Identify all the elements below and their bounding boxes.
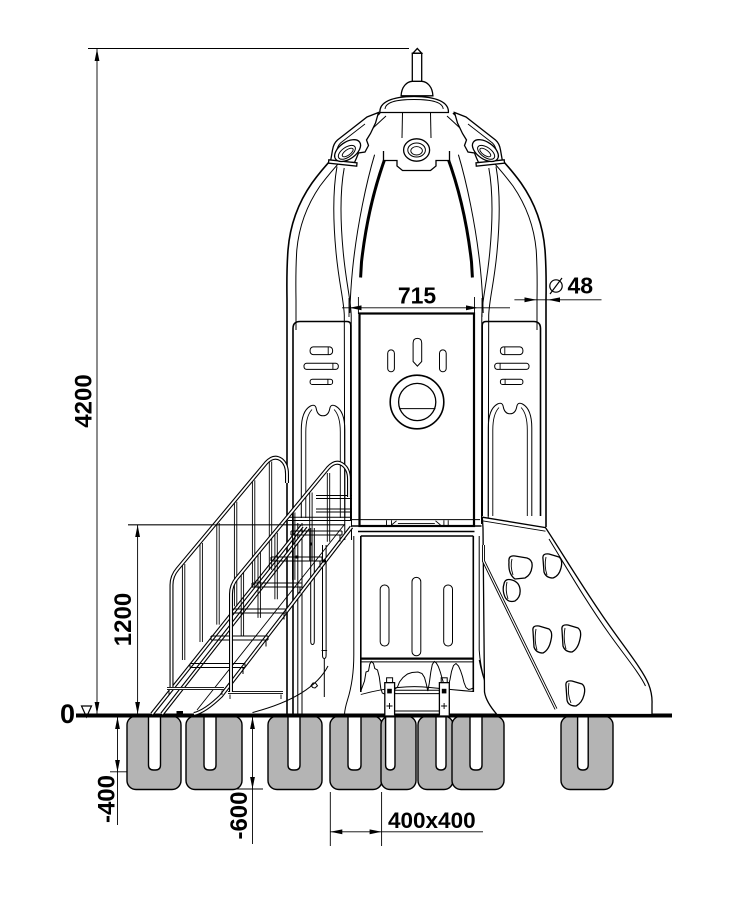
svg-text:715: 715 <box>398 283 437 309</box>
svg-text:4200: 4200 <box>71 374 98 427</box>
svg-text:1200: 1200 <box>110 593 137 646</box>
svg-text:48: 48 <box>568 273 594 299</box>
svg-text:-400: -400 <box>94 775 121 823</box>
svg-text:-600: -600 <box>226 791 253 839</box>
svg-text:0: 0 <box>60 699 75 729</box>
svg-text:400x400: 400x400 <box>388 808 476 833</box>
